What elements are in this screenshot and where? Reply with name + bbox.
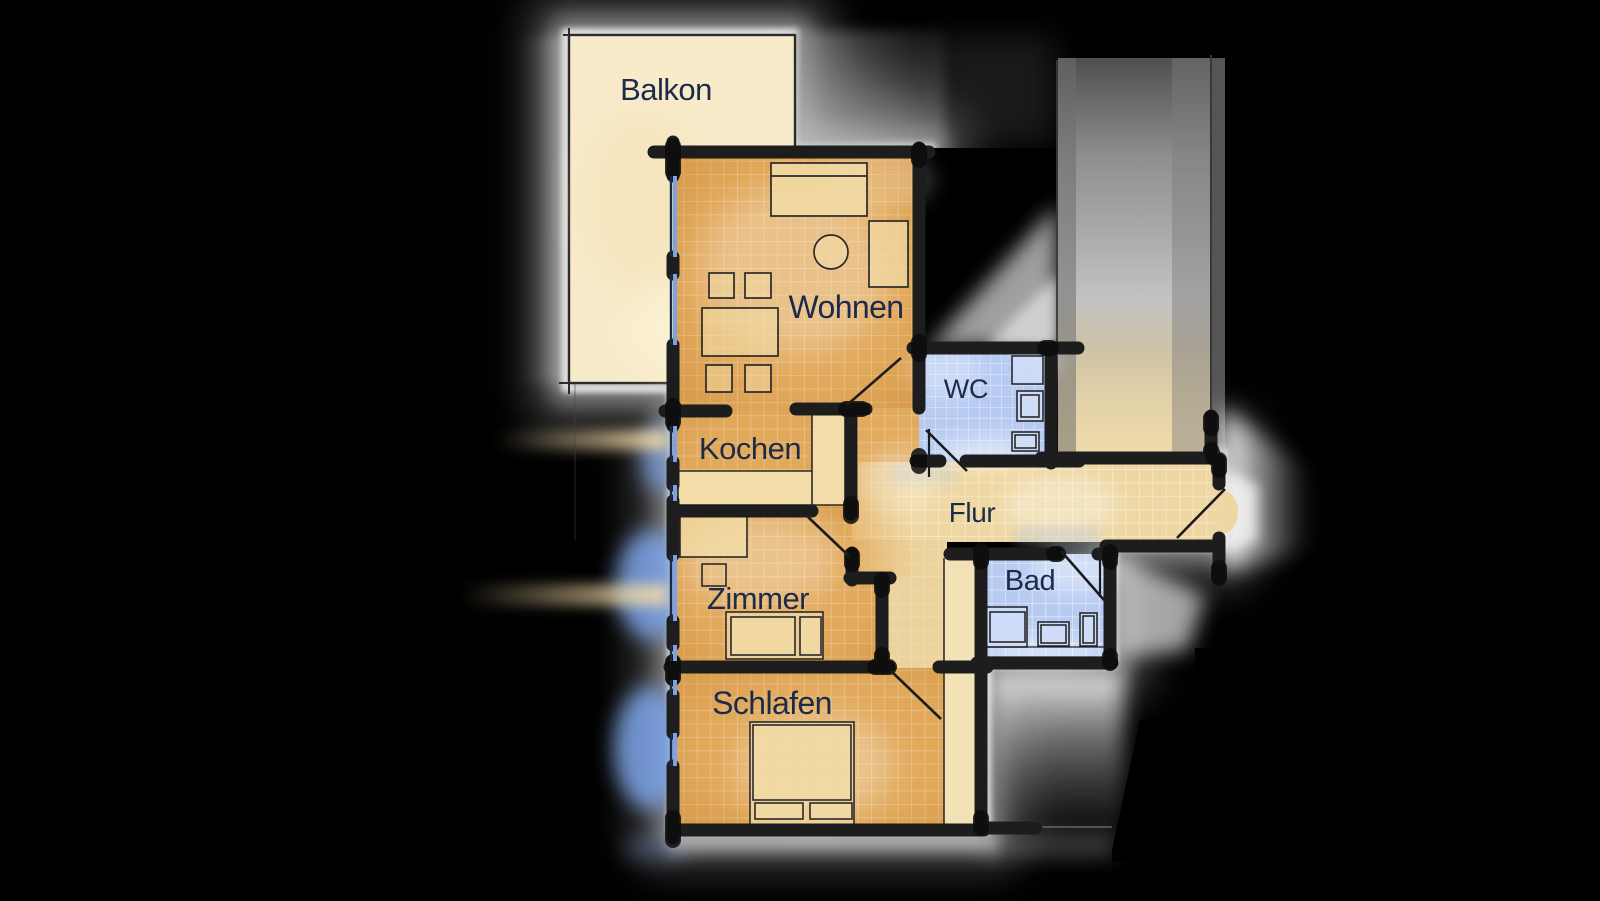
svg-text:Zimmer: Zimmer <box>707 581 809 616</box>
svg-text:Kochen: Kochen <box>699 431 801 466</box>
svg-text:Wohnen: Wohnen <box>788 289 903 325</box>
svg-text:Bad: Bad <box>1005 565 1055 597</box>
svg-text:WC: WC <box>944 374 988 404</box>
svg-text:Balkon: Balkon <box>620 72 712 107</box>
svg-text:Flur: Flur <box>949 497 996 528</box>
svg-text:Schlafen: Schlafen <box>712 685 832 721</box>
